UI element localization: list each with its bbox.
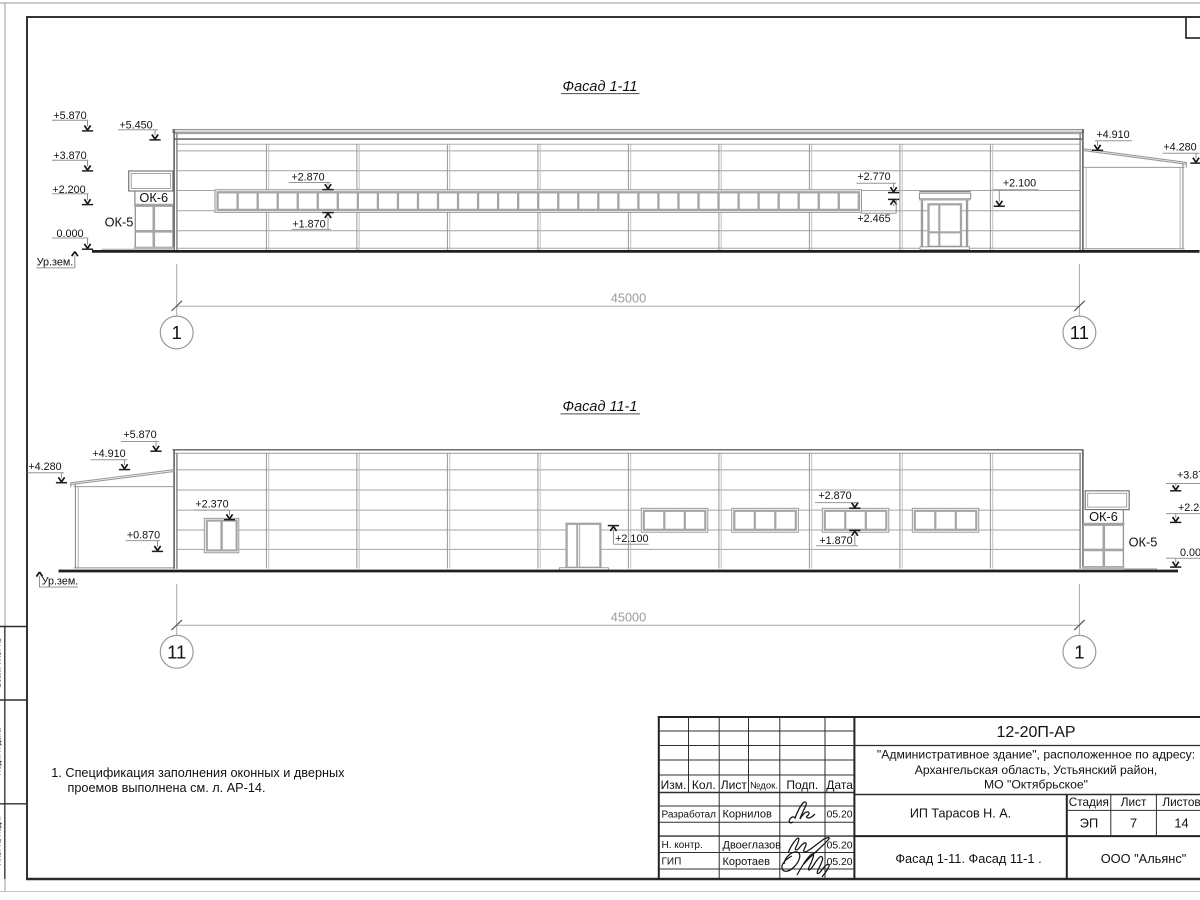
svg-text:Ур.зем.: Ур.зем. [37, 257, 74, 269]
svg-text:+0.870: +0.870 [127, 529, 160, 541]
svg-text:Лист: Лист [721, 778, 748, 792]
svg-text:05.20: 05.20 [827, 857, 853, 868]
svg-text:Корнилов: Корнилов [723, 809, 773, 821]
svg-text:0.000: 0.000 [1180, 547, 1200, 559]
svg-text:+1.870: +1.870 [819, 535, 852, 547]
svg-text:+2.100: +2.100 [1003, 178, 1036, 190]
svg-text:Подп. и дата: Подп. и дата [0, 728, 3, 776]
svg-text:+4.280: +4.280 [28, 461, 61, 473]
svg-text:45000: 45000 [611, 290, 647, 305]
svg-text:Инв. № подл.: Инв. № подл. [0, 816, 3, 866]
svg-text:45000: 45000 [611, 609, 647, 624]
svg-text:+2.870: +2.870 [818, 490, 851, 502]
svg-text:14: 14 [1174, 815, 1188, 830]
svg-text:Подп.: Подп. [786, 778, 818, 792]
svg-text:Кол.: Кол. [692, 778, 716, 792]
svg-text:Коротаев: Коротаев [723, 856, 771, 868]
svg-text:+4.910: +4.910 [92, 448, 125, 460]
svg-text:12-20П-АР: 12-20П-АР [996, 724, 1075, 741]
svg-text:№док.: №док. [750, 781, 778, 792]
svg-text:Фасад 11-1: Фасад 11-1 [563, 399, 638, 415]
svg-text:ООО "Альянс": ООО "Альянс" [1101, 851, 1187, 866]
svg-text:Дата: Дата [826, 778, 853, 792]
svg-text:Н. контр.: Н. контр. [662, 840, 703, 851]
svg-text:Ур.зем.: Ур.зем. [42, 576, 79, 588]
svg-text:05.20: 05.20 [827, 810, 853, 821]
svg-text:ОК-6: ОК-6 [139, 190, 168, 205]
svg-text:Взам. инв. №: Взам. инв. № [0, 638, 3, 688]
svg-text:05.20: 05.20 [827, 840, 853, 851]
svg-text:1: 1 [1074, 641, 1084, 662]
svg-text:Разработал: Разработал [662, 808, 717, 820]
svg-text:+5.870: +5.870 [123, 429, 156, 441]
svg-text:"Административное здание", рас: "Административное здание", расположенное… [877, 748, 1195, 762]
svg-text:ОК-5: ОК-5 [105, 215, 134, 230]
svg-text:Двоеглазов: Двоеглазов [723, 839, 782, 851]
svg-text:Фасад 1-11. Фасад 11-1 .: Фасад 1-11. Фасад 11-1 . [895, 851, 1041, 866]
svg-text:+2.465: +2.465 [857, 213, 890, 225]
svg-text:Лист: Лист [1121, 795, 1147, 809]
svg-text:ГИП: ГИП [662, 857, 682, 868]
svg-text:1. Спецификация заполнения око: 1. Спецификация заполнения оконных и две… [51, 766, 345, 780]
svg-text:МО "Октябрьское": МО "Октябрьское" [984, 777, 1088, 791]
svg-text:1: 1 [172, 322, 182, 343]
svg-text:Стадия: Стадия [1069, 795, 1109, 809]
svg-text:+2.200: +2.200 [1178, 502, 1200, 514]
svg-text:проемов выполнена см. л. АР-14: проемов выполнена см. л. АР-14. [68, 781, 266, 795]
svg-text:ЭП: ЭП [1080, 815, 1098, 830]
svg-text:7: 7 [1130, 815, 1137, 830]
svg-text:11: 11 [167, 641, 186, 662]
svg-text:+1.870: +1.870 [292, 219, 325, 231]
svg-text:Фасад 1-11: Фасад 1-11 [563, 79, 638, 95]
svg-text:+4.280: +4.280 [1163, 142, 1196, 154]
svg-text:Листов: Листов [1162, 795, 1200, 809]
svg-text:ИП Тарасов Н. А.: ИП Тарасов Н. А. [910, 806, 1011, 820]
svg-text:+2.770: +2.770 [857, 171, 890, 183]
svg-text:+4.910: +4.910 [1096, 129, 1129, 141]
svg-text:11: 11 [1070, 322, 1089, 343]
svg-text:+2.870: +2.870 [291, 172, 324, 184]
svg-text:+2.370: +2.370 [195, 498, 228, 510]
svg-text:Изм.: Изм. [661, 778, 687, 792]
svg-text:+3.870: +3.870 [1177, 470, 1200, 482]
svg-text:+2.100: +2.100 [615, 533, 648, 545]
svg-text:Архангельская область, Устьянс: Архангельская область, Устьянский район, [915, 763, 1158, 777]
svg-text:ОК-5: ОК-5 [1129, 534, 1158, 549]
svg-text:ОК-6: ОК-6 [1089, 509, 1118, 524]
